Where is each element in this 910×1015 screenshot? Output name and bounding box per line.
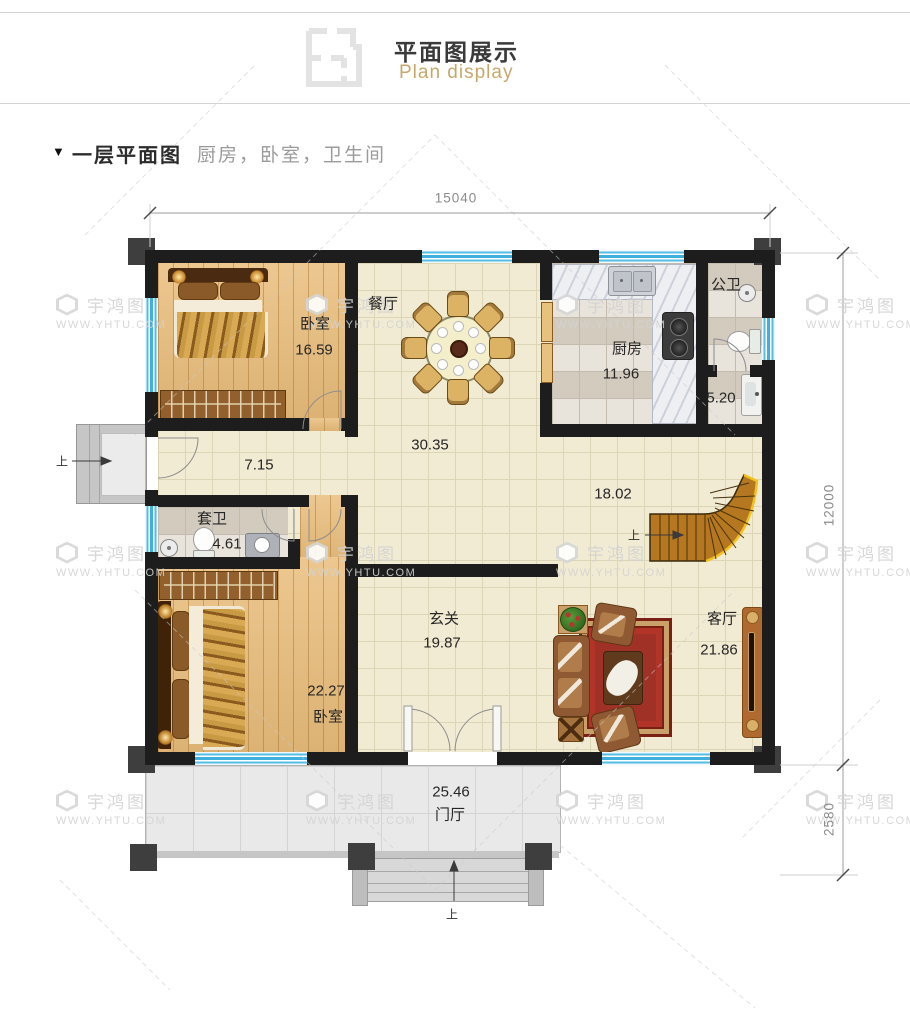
watermark: 宇鸿图WWW.YHTU.COM [306, 788, 416, 827]
foyer-label: 玄关 [429, 608, 459, 629]
kitchen-area: 11.96 [603, 366, 639, 383]
direction-arrows [72, 457, 683, 901]
watermark: 宇鸿图WWW.YHTU.COM [806, 540, 910, 579]
dimension-lines [144, 204, 858, 881]
hall-area: 30.35 [411, 437, 449, 454]
watermark: 宇鸿图WWW.YHTU.COM [306, 540, 416, 579]
ensuite-bath-area: 4.61 [212, 536, 241, 553]
watermark: 宇鸿图WWW.YHTU.COM [56, 540, 166, 579]
dimension-total-width: 15040 [435, 191, 478, 206]
watermark: 宇鸿图WWW.YHTU.COM [556, 540, 666, 579]
watermark-logo-icon [806, 294, 828, 316]
watermark-diagonal-lines [60, 65, 880, 1008]
porch-label: 门厅 [435, 804, 465, 825]
watermark-logo-icon [556, 542, 578, 564]
dining-label: 餐厅 [368, 293, 398, 314]
bedroom1-label: 卧室 [300, 313, 330, 334]
bedroom1-area: 16.59 [295, 342, 333, 359]
up-marker-stairs: 上 [628, 527, 640, 544]
up-marker-side-entry: 上 [56, 453, 68, 470]
watermark-logo-icon [556, 790, 578, 812]
stair-hall-area: 18.02 [594, 486, 632, 503]
foyer-area: 19.87 [423, 635, 461, 652]
porch-area: 25.46 [432, 784, 470, 801]
bath-alcove-area: 5.20 [706, 390, 735, 407]
watermark-logo-icon [806, 542, 828, 564]
watermark: 宇鸿图WWW.YHTU.COM [556, 788, 666, 827]
watermark: 宇鸿图WWW.YHTU.COM [806, 292, 910, 331]
watermark-logo-icon [56, 790, 78, 812]
watermark-logo-icon [56, 294, 78, 316]
bedroom2-area: 22.27 [307, 683, 345, 700]
plan-annotations [0, 0, 910, 1015]
public-bath-label: 公卫 [711, 274, 741, 295]
corridor-area: 7.15 [244, 457, 273, 474]
living-area: 21.86 [700, 642, 738, 659]
up-marker-front-steps: 上 [446, 906, 458, 923]
watermark-logo-icon [306, 790, 328, 812]
plan-display-page: 平面图展示 Plan display ▼ 一层平面图 厨房，卧室，卫生间 [0, 0, 910, 1015]
kitchen-label: 厨房 [612, 338, 642, 359]
watermark-logo-icon [56, 542, 78, 564]
living-label: 客厅 [707, 608, 737, 629]
watermark: 宇鸿图WWW.YHTU.COM [56, 292, 166, 331]
dimension-porch-depth: 2580 [822, 802, 837, 836]
watermark-logo-icon [556, 294, 578, 316]
watermark: 宇鸿图WWW.YHTU.COM [56, 788, 166, 827]
dimension-main-depth: 12000 [822, 484, 837, 527]
ensuite-bath-label: 套卫 [197, 508, 227, 529]
watermark-logo-icon [306, 542, 328, 564]
door-panels [404, 706, 501, 751]
bedroom2-label: 卧室 [313, 706, 343, 727]
watermark: 宇鸿图WWW.YHTU.COM [556, 292, 666, 331]
